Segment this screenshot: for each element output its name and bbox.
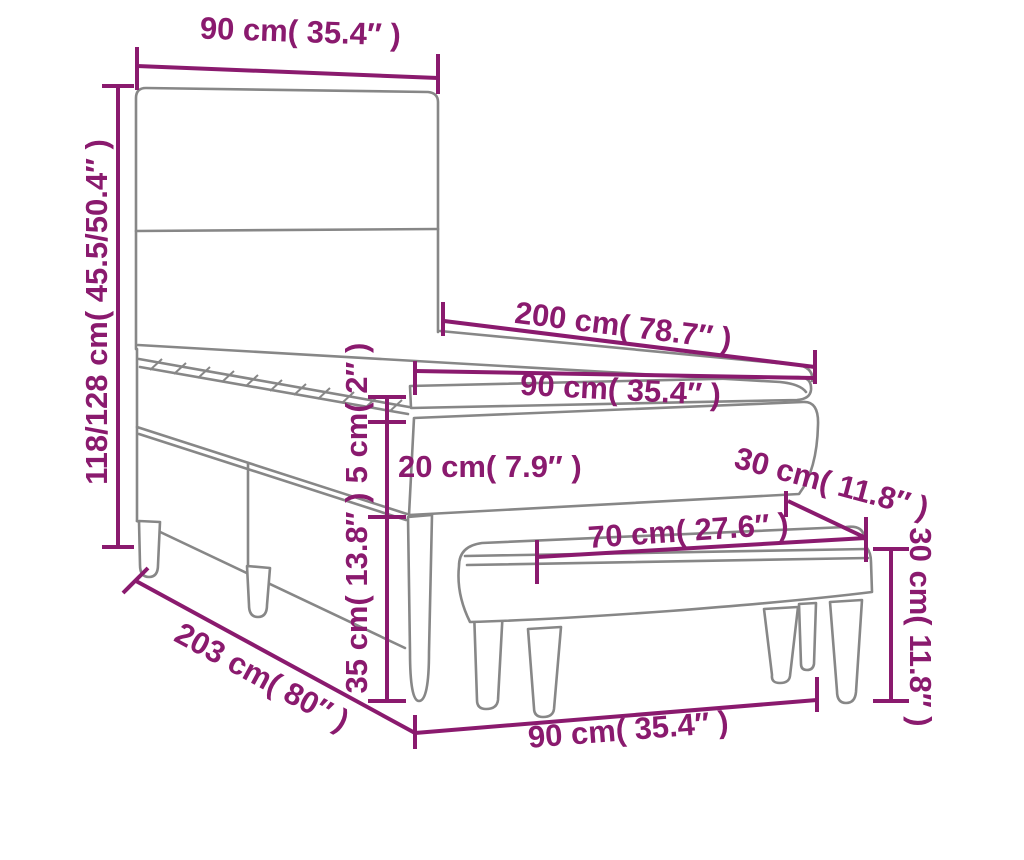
bench-leg-front-right (830, 600, 862, 703)
diagram-canvas: 90 cm( 35.4″ ) 118/128 cm( 45.5/50.4″ ) … (0, 0, 1024, 860)
dimension-label: 30 cm( 11.8″ ) (903, 527, 938, 726)
dimension-height: 118/128 cm( 45.5/50.4″ ) (79, 86, 134, 547)
dimension-label: 35 cm( 13.8″ ) (339, 493, 374, 694)
headboard-seam (136, 229, 438, 231)
bench-leg-back-right (764, 607, 798, 683)
dimension-box-height: 20 cm( 7.9″ ) (398, 449, 582, 484)
dimension-label: 90 cm( 35.4″ ) (199, 11, 401, 53)
dimension-label: 20 cm( 7.9″ ) (398, 449, 582, 484)
bench-leg-back-left (528, 627, 561, 717)
dimension-label: 200 cm( 78.7″ ) (513, 295, 734, 356)
dimension-bench-width: 90 cm( 35.4″ ) (415, 677, 817, 755)
dimension-headboard-width: 90 cm( 35.4″ ) (137, 11, 438, 94)
dimension-label: 5 cm( 2″ ) (339, 343, 374, 484)
dimension-label: 203 cm( 80″ ) (169, 616, 355, 739)
bed-leg-middle (247, 566, 270, 617)
bench-leg-front-left (474, 608, 503, 709)
bed-leg-foot-near (408, 515, 432, 701)
dimension-label: 90 cm( 35.4″ ) (527, 704, 730, 755)
headboard-outline (136, 88, 438, 349)
dimension-bench-height: 30 cm( 11.8″ ) (873, 527, 938, 726)
dimension-leg-height: 35 cm( 13.8″ ) (339, 493, 374, 694)
dimension-label: 118/128 cm( 45.5/50.4″ ) (79, 139, 114, 485)
bed-leg-head (139, 521, 160, 577)
dimension-topper-height: 5 cm( 2″ ) (339, 343, 374, 484)
bed-leg-foot-far (799, 603, 816, 670)
dimension-diagram: 90 cm( 35.4″ ) 118/128 cm( 45.5/50.4″ ) … (0, 0, 1024, 860)
